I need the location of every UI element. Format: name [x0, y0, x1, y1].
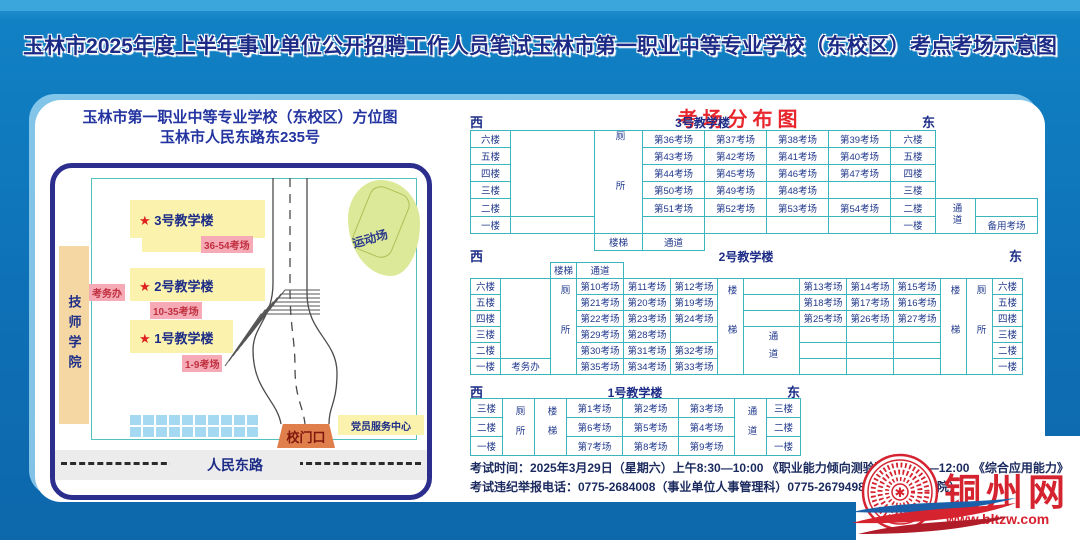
exam-room-cell: 第31考场	[624, 342, 671, 358]
map-title-line1: 玉林市第一职业中等专业学校（东校区）方位图	[40, 106, 440, 127]
exam-room-cell	[847, 342, 894, 358]
toilet-cell: 厕所	[551, 278, 577, 374]
exam-room-cell: 第9考场	[679, 437, 735, 456]
floor-label: 三楼	[767, 399, 801, 418]
floor-label: 五楼	[891, 148, 936, 165]
floor-label: 三楼	[891, 182, 936, 199]
map-title-line2: 玉林市人民东路东235号	[40, 126, 440, 147]
exam-room-cell: 第12考场	[671, 278, 718, 294]
exam-room-cell	[894, 358, 941, 374]
exam-room-cell: 第13考场	[800, 278, 847, 294]
passage-cell: 通道	[744, 326, 800, 374]
campus-map: 技师学院 运动场 ★ 3号教学楼 36-54考场 ★ 2号教学楼 考务办 10-…	[50, 163, 432, 500]
exam-room-cell: 第32考场	[671, 342, 718, 358]
exam-room-cell: 第5考场	[623, 418, 679, 437]
floor-label: 四楼	[993, 310, 1023, 326]
building-3-table: 六楼 厕所 第36考场 第37考场 第38考场 第39考场 六楼 五楼 第43考…	[470, 130, 1038, 251]
west-wing-empty	[511, 217, 595, 234]
floor-label: 一楼	[993, 358, 1023, 374]
exam-room-cell	[800, 326, 847, 342]
passage-cell: 通道	[577, 263, 624, 279]
building-1-label: ★ 1号教学楼	[139, 328, 214, 347]
floor-label: 二楼	[471, 418, 503, 437]
exam-room-cell	[829, 217, 891, 234]
exam-room-cell: 第18考场	[800, 294, 847, 310]
exam-room-cell	[705, 217, 767, 234]
floor-label: 二楼	[993, 342, 1023, 358]
exam-room-cell: 第50考场	[643, 182, 705, 199]
exam-room-cell: 第14考场	[847, 278, 894, 294]
building-2-table: 楼梯 通道 六楼 厕所 第10考场 第11考场 第12考场 楼梯 第13考场 第…	[470, 262, 1023, 375]
building-1-table: 三楼 厕所 楼梯 第1考场 第2考场 第3考场 通道 三楼 二楼 第6考场 第5…	[470, 398, 801, 456]
building-2-rooms-tag: 10-35考场	[150, 302, 202, 319]
exam-room-cell: 第38考场	[767, 131, 829, 148]
exam-room-cell	[800, 358, 847, 374]
exam-room-cell	[847, 326, 894, 342]
floor-label: 四楼	[471, 310, 501, 326]
exam-room-cell: 第17考场	[847, 294, 894, 310]
top-accent-strip	[0, 0, 1080, 11]
building-3-name: 3号教学楼	[675, 114, 730, 131]
exam-room-cell: 第11考场	[624, 278, 671, 294]
floor-label: 五楼	[993, 294, 1023, 310]
floor-label: 四楼	[891, 165, 936, 182]
floor-label: 六楼	[471, 278, 501, 294]
star-icon: ★	[139, 331, 151, 346]
exam-room-cell: 第48考场	[767, 182, 829, 199]
floor-label: 二楼	[767, 418, 801, 437]
road-name-label: 人民东路	[170, 455, 300, 475]
exam-room-cell: 第27考场	[894, 310, 941, 326]
east-label: 东	[922, 112, 935, 131]
mid-empty-cell	[744, 294, 800, 310]
stairs-cell: 楼梯	[535, 399, 567, 456]
exam-room-cell	[894, 326, 941, 342]
floor-label: 一楼	[471, 358, 501, 374]
floor-label: 四楼	[471, 165, 511, 182]
empty-cell	[976, 199, 1038, 217]
exam-room-cell: 第23考场	[624, 310, 671, 326]
mid-empty-cell	[744, 310, 800, 326]
west-label: 西	[470, 112, 483, 131]
exam-room-cell: 第35考场	[577, 358, 624, 374]
exam-room-cell: 第2考场	[623, 399, 679, 418]
party-service-center: 党员服务中心	[338, 415, 424, 435]
building-3-table-header: 西 3号教学楼 东	[470, 112, 935, 131]
exam-room-cell: 第8考场	[623, 437, 679, 456]
exam-room-cell: 第45考场	[705, 165, 767, 182]
floor-label: 二楼	[891, 199, 936, 217]
exam-room-cell	[800, 342, 847, 358]
exam-room-cell: 第34考场	[624, 358, 671, 374]
exam-room-cell: 第36考场	[643, 131, 705, 148]
floor-label: 五楼	[471, 148, 511, 165]
floor-label: 一楼	[891, 217, 936, 234]
exam-room-cell: 第19考场	[671, 294, 718, 310]
floor-label: 六楼	[471, 131, 511, 148]
stairs-cell: 楼梯	[718, 278, 744, 374]
building-1-rooms-tag: 1-9考场	[182, 355, 222, 372]
logo-swoosh-decoration	[850, 496, 1020, 540]
exam-room-cell: 第20考场	[624, 294, 671, 310]
exam-room-cell: 第43考场	[643, 148, 705, 165]
exam-room-cell: 第10考场	[577, 278, 624, 294]
toilet-cell: 厕所	[967, 278, 993, 374]
floor-label: 三楼	[993, 326, 1023, 342]
floor-label: 三楼	[471, 326, 501, 342]
exam-room-cell: 第46考场	[767, 165, 829, 182]
hatch-ramp-lines	[225, 290, 320, 366]
renmin-east-road: 人民东路	[55, 450, 427, 480]
toilet-cell: 厕所	[595, 131, 643, 234]
floor-label: 五楼	[471, 294, 501, 310]
passage-cell: 通道	[936, 199, 976, 234]
exam-room-cell: 第37考场	[705, 131, 767, 148]
school-gate: 校门口	[277, 424, 335, 448]
exam-room-cell: 第3考场	[679, 399, 735, 418]
exam-room-cell: 第44考场	[643, 165, 705, 182]
building-3-label: ★ 3号教学楼	[139, 210, 214, 229]
exam-room-cell: 第16考场	[894, 294, 941, 310]
exam-room-cell: 第15考场	[894, 278, 941, 294]
exam-room-cell	[847, 358, 894, 374]
exam-room-cell: 第1考场	[567, 399, 623, 418]
building-3-rooms-tag: 36-54考场	[201, 236, 253, 253]
west-wing-empty	[511, 131, 595, 217]
exam-room-cell: 第52考场	[705, 199, 767, 217]
exam-room-cell: 第29考场	[577, 326, 624, 342]
backup-room-cell: 备用考场	[976, 217, 1038, 234]
floor-label: 六楼	[993, 278, 1023, 294]
building-2-label: ★ 2号教学楼	[139, 276, 214, 295]
exam-room-cell: 第41考场	[767, 148, 829, 165]
exam-room-cell	[829, 182, 891, 199]
stairs-cell: 楼梯	[551, 263, 577, 279]
exam-room-cell: 第4考场	[679, 418, 735, 437]
exam-room-cell: 第6考场	[567, 418, 623, 437]
parking-grid	[130, 415, 258, 437]
page-title: 玉林市2025年度上半年事业单位公开招聘工作人员笔试玉林市第一职业中等专业学校（…	[0, 30, 1080, 60]
floor-label: 一楼	[767, 437, 801, 456]
exam-room-cell: 第39考场	[829, 131, 891, 148]
exam-room-cell: 第22考场	[577, 310, 624, 326]
exam-office-tag: 考务办	[89, 284, 125, 301]
floor-label: 一楼	[471, 437, 503, 456]
exam-room-cell: 第51考场	[643, 199, 705, 217]
exam-room-cell: 第42考场	[705, 148, 767, 165]
exam-room-cell: 第7考场	[567, 437, 623, 456]
exam-room-cell: 第54考场	[829, 199, 891, 217]
star-icon: ★	[139, 279, 151, 294]
exam-room-cell: 第49考场	[705, 182, 767, 199]
exam-room-cell: 第40考场	[829, 148, 891, 165]
exam-room-cell: 第24考场	[671, 310, 718, 326]
exam-office-cell: 考务办	[501, 358, 551, 374]
exam-room-cell: 第33考场	[671, 358, 718, 374]
exam-room-cell: 第30考场	[577, 342, 624, 358]
exam-room-cell	[894, 342, 941, 358]
floor-label: 一楼	[471, 217, 511, 234]
exam-room-cell	[643, 217, 705, 234]
star-icon: ★	[139, 213, 151, 228]
exam-room-cell: 第26考场	[847, 310, 894, 326]
exam-room-cell	[671, 326, 718, 342]
passage-cell: 通道	[735, 399, 767, 456]
exam-room-cell: 第53考场	[767, 199, 829, 217]
exam-room-cell: 第47考场	[829, 165, 891, 182]
floor-label: 三楼	[471, 399, 503, 418]
floor-label: 六楼	[891, 131, 936, 148]
floor-label: 二楼	[471, 199, 511, 217]
mid-empty-cell	[744, 278, 800, 294]
exam-room-cell: 第28考场	[624, 326, 671, 342]
west-wing-empty	[501, 278, 551, 358]
toilet-cell: 厕所	[503, 399, 535, 456]
floor-label: 三楼	[471, 182, 511, 199]
exam-room-cell	[767, 217, 829, 234]
jishi-college-block: 技师学院	[59, 246, 89, 424]
jishi-college-label: 技师学院	[65, 295, 84, 375]
stairs-cell: 楼梯	[941, 278, 967, 374]
floor-label: 二楼	[471, 342, 501, 358]
exam-room-cell: 第25考场	[800, 310, 847, 326]
exam-room-cell: 第21考场	[577, 294, 624, 310]
